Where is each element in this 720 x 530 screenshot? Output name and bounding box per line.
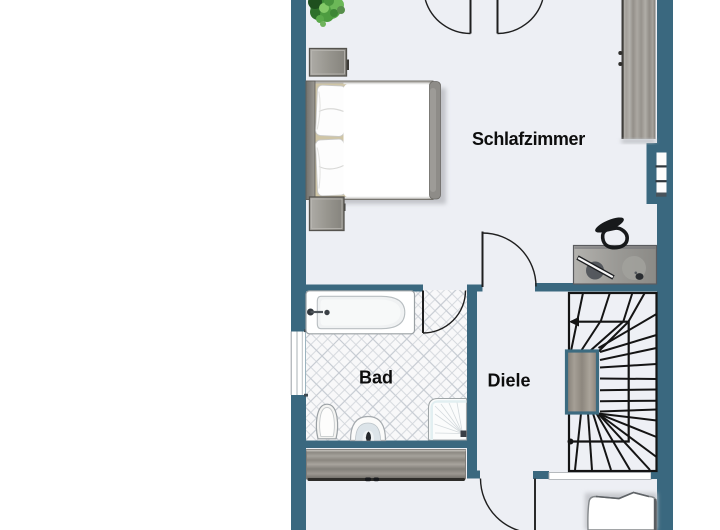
- svg-text:Bad: Bad: [359, 367, 393, 387]
- svg-text:Schlafzimmer: Schlafzimmer: [472, 129, 585, 149]
- svg-text:Diele: Diele: [488, 370, 531, 390]
